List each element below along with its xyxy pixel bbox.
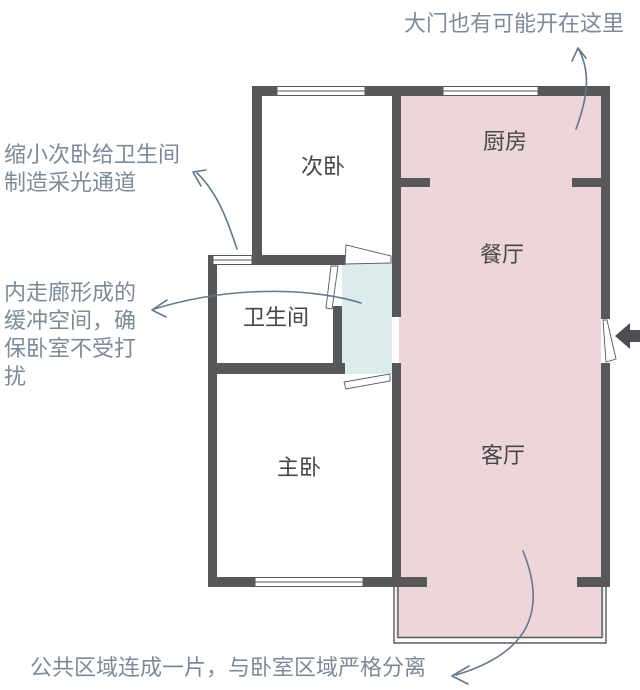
dining-label: 餐厅 — [480, 243, 524, 267]
balcony-fill — [396, 578, 604, 638]
corridor-note: 内走廊形成的 缓冲空间，确 保卧室不受打 扰 — [4, 279, 136, 391]
second-bedroom-window — [277, 87, 365, 96]
light-channel-note: 缩小次卧给卫生间 制造采光通道 — [4, 141, 180, 197]
master-bedroom-window — [255, 578, 363, 587]
second-bedroom-door — [345, 245, 391, 264]
master-bedroom-door — [344, 374, 390, 389]
second-bedroom-label: 次卧 — [301, 155, 345, 179]
entry-door — [603, 320, 616, 362]
bathroom-label: 卫生间 — [243, 306, 309, 330]
separation-note: 公共区域连成一片，与卧室区域严格分离 — [30, 654, 426, 682]
kitchen-label: 厨房 — [483, 130, 527, 154]
living-label: 客厅 — [481, 444, 525, 468]
bathroom-door — [326, 266, 338, 309]
floor-plan-figure: 次卧 厨房 餐厅 卫生间 主卧 客厅 大门也有可能开在这里 缩小次卧给卫生间 制… — [0, 0, 640, 690]
bathroom-window — [213, 256, 252, 265]
master-bedroom-label: 主卧 — [277, 456, 321, 480]
gate-note: 大门也有可能开在这里 — [404, 10, 624, 38]
kitchen-window — [443, 87, 538, 96]
corridor-fill — [342, 258, 392, 374]
public-area-fill — [396, 96, 604, 638]
entry-arrow-icon — [615, 323, 640, 349]
light-channel-annotation-arrow — [193, 170, 237, 249]
